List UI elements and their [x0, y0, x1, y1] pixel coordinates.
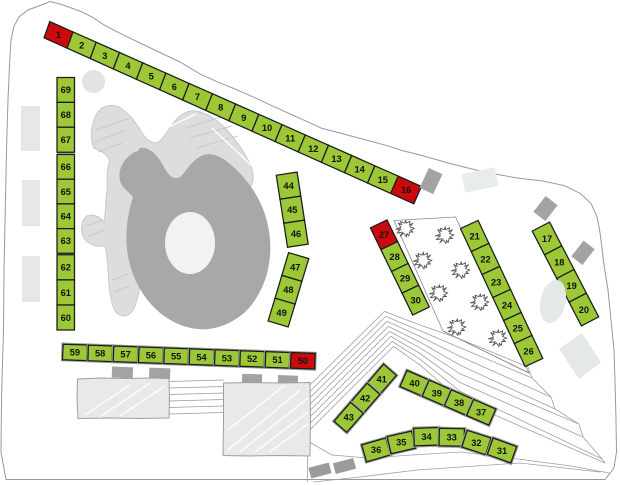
- svg-text:31: 31: [497, 446, 507, 456]
- svg-text:20: 20: [579, 305, 589, 315]
- svg-text:64: 64: [61, 212, 72, 222]
- svg-text:40: 40: [409, 379, 419, 389]
- svg-text:54: 54: [196, 352, 207, 362]
- svg-text:2: 2: [79, 41, 84, 51]
- svg-text:44: 44: [283, 181, 294, 191]
- svg-text:9: 9: [241, 113, 246, 123]
- svg-text:15: 15: [378, 175, 388, 185]
- svg-text:62: 62: [61, 263, 71, 273]
- svg-text:51: 51: [272, 355, 282, 365]
- svg-text:61: 61: [61, 288, 71, 298]
- svg-text:66: 66: [61, 162, 71, 172]
- svg-text:14: 14: [355, 165, 366, 175]
- svg-text:29: 29: [400, 274, 410, 284]
- svg-text:48: 48: [283, 285, 293, 295]
- svg-text:30: 30: [411, 295, 421, 305]
- svg-text:22: 22: [480, 254, 490, 264]
- svg-text:68: 68: [61, 110, 71, 120]
- svg-text:8: 8: [218, 103, 223, 113]
- svg-text:4: 4: [125, 61, 131, 71]
- svg-text:60: 60: [61, 313, 71, 323]
- svg-text:21: 21: [470, 231, 480, 241]
- svg-text:46: 46: [291, 229, 301, 239]
- svg-text:10: 10: [262, 123, 272, 133]
- svg-text:65: 65: [61, 187, 71, 197]
- svg-text:63: 63: [61, 236, 71, 246]
- svg-text:56: 56: [146, 351, 156, 361]
- svg-text:28: 28: [389, 252, 399, 262]
- svg-text:55: 55: [171, 351, 181, 361]
- svg-text:6: 6: [172, 82, 177, 92]
- svg-text:53: 53: [222, 353, 232, 363]
- svg-text:47: 47: [290, 262, 300, 272]
- svg-text:58: 58: [95, 349, 105, 359]
- svg-text:49: 49: [276, 308, 286, 318]
- svg-text:5: 5: [149, 72, 154, 82]
- svg-text:67: 67: [61, 135, 71, 145]
- svg-text:50: 50: [298, 356, 308, 366]
- svg-text:41: 41: [377, 375, 387, 385]
- svg-text:25: 25: [513, 323, 523, 333]
- svg-text:39: 39: [432, 388, 442, 398]
- svg-text:59: 59: [70, 348, 80, 358]
- svg-text:38: 38: [454, 398, 464, 408]
- svg-text:36: 36: [371, 445, 381, 455]
- svg-text:34: 34: [421, 432, 432, 442]
- svg-text:24: 24: [502, 300, 513, 310]
- svg-text:11: 11: [285, 134, 295, 144]
- svg-text:23: 23: [491, 277, 501, 287]
- svg-text:16: 16: [401, 185, 411, 195]
- svg-text:45: 45: [287, 205, 297, 215]
- svg-text:37: 37: [476, 408, 486, 418]
- svg-text:33: 33: [447, 433, 457, 443]
- svg-text:7: 7: [195, 92, 200, 102]
- svg-text:13: 13: [331, 154, 341, 164]
- svg-text:19: 19: [566, 281, 576, 291]
- svg-text:57: 57: [120, 350, 130, 360]
- svg-text:18: 18: [554, 258, 564, 268]
- svg-text:52: 52: [247, 354, 257, 364]
- svg-text:1: 1: [56, 30, 61, 40]
- svg-text:27: 27: [379, 230, 389, 240]
- svg-text:42: 42: [360, 394, 370, 404]
- svg-text:3: 3: [102, 51, 107, 61]
- svg-text:43: 43: [344, 413, 354, 423]
- svg-text:12: 12: [308, 144, 318, 154]
- svg-text:35: 35: [396, 438, 406, 448]
- svg-text:69: 69: [61, 85, 71, 95]
- svg-text:17: 17: [542, 234, 552, 244]
- svg-text:26: 26: [523, 346, 533, 356]
- svg-text:32: 32: [471, 438, 481, 448]
